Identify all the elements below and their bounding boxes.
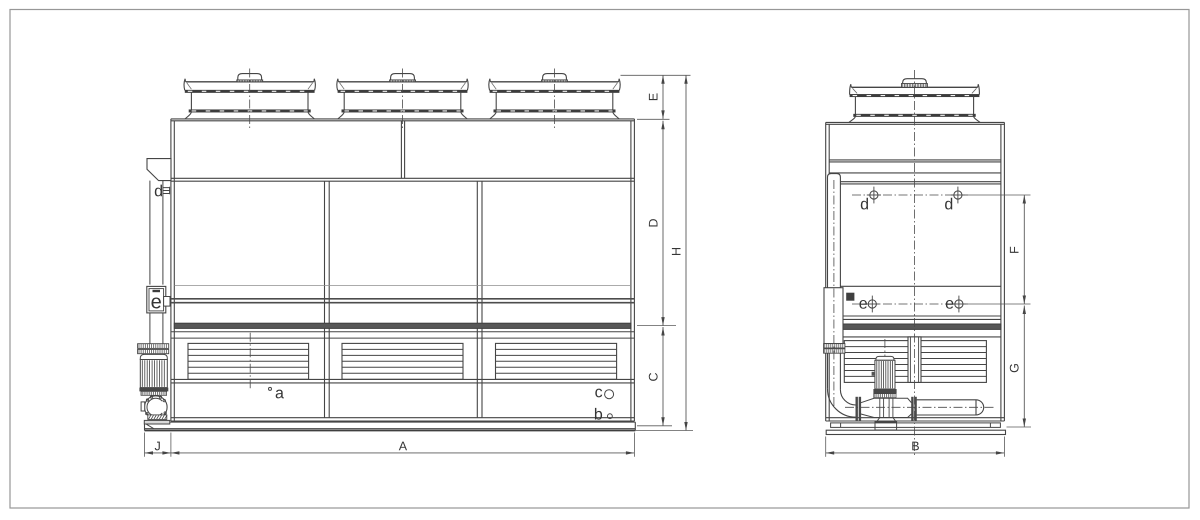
svg-text:e: e [945, 296, 954, 313]
svg-text:A: A [399, 439, 408, 453]
svg-text:F: F [1008, 246, 1022, 254]
svg-text:a: a [275, 385, 284, 402]
svg-text:e: e [151, 291, 162, 313]
svg-text:G: G [1008, 363, 1022, 373]
svg-text:d: d [154, 183, 163, 200]
svg-text:C: C [646, 372, 660, 381]
svg-text:J: J [154, 439, 160, 453]
svg-text:c: c [595, 384, 603, 401]
svg-text:B: B [911, 439, 919, 453]
svg-text:E: E [646, 93, 660, 101]
svg-text:e: e [859, 296, 868, 313]
svg-text:H: H [669, 247, 683, 256]
svg-text:b: b [594, 406, 603, 423]
svg-text:D: D [646, 218, 660, 227]
svg-text:d: d [944, 196, 953, 213]
svg-text:d: d [860, 196, 869, 213]
